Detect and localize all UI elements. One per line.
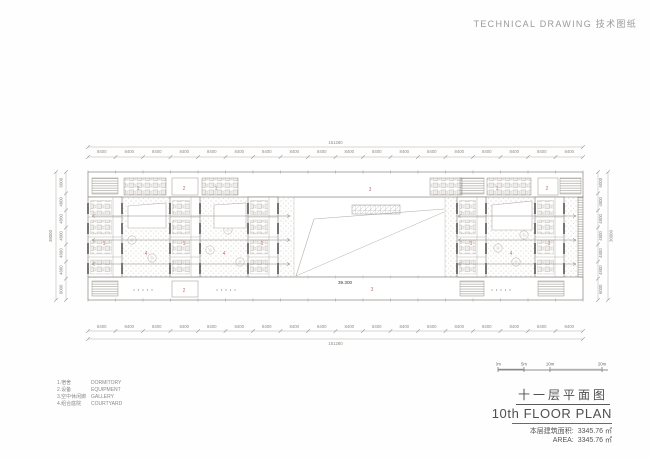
dot-row [138,289,139,290]
legend-item-zh: 1.宿舍 [57,380,91,387]
dimension-text: 8400 [454,324,464,329]
dimension-text: 8400 [234,324,244,329]
dimension-text: 6000 [59,284,64,294]
room-furniture [251,220,268,234]
dimension-text: 6000 [59,177,64,187]
legend-item: 1.宿舍DORMITORY [57,380,122,387]
dimension-text: 4800 [59,265,64,275]
dimension-text: 8400 [564,324,574,329]
legend: 1.宿舍DORMITORY2.设备EQUIPMENT3.空中休闲廊GALLERY… [57,380,122,408]
area-label: 本层建筑面积: [530,428,574,435]
room-number-label: 2 [546,186,549,192]
room-furniture [251,201,268,215]
title-block: 0m5m10m20m 十一层平面图 10th FLOOR PLAN 本层建筑面积… [492,360,612,445]
dimension-text: 8400 [317,324,327,329]
room-furniture [91,260,112,274]
scale-label: 20m [598,362,607,367]
dimension-text: 8400 [152,324,162,329]
dimension-text: 4800 [598,231,603,241]
plan-title-en: 10th FLOOR PLAN [492,406,612,421]
legend-item: 4.组合庭院COURTYARD [57,401,122,408]
room-number-label: 1 [215,186,218,192]
legend-item-en: EQUIPMENT [91,387,121,394]
dimension-text: 8400 [427,149,437,154]
dimension-text: 8400 [454,149,464,154]
dimension-text: 6000 [598,284,603,294]
room-furniture [173,201,190,215]
room-number-label: 4 [145,251,148,257]
scale-label: 0m [496,362,501,367]
room-furniture [173,260,190,274]
dimension-text: 8400 [207,324,217,329]
drawing-sheet: TECHNICAL DRAWING 技术图纸 84008400840084008… [0,0,650,459]
corridor-room [560,178,581,194]
dimension-text: 4800 [598,248,603,258]
room-number-label: 1 [496,186,499,192]
corridor-room [460,178,484,194]
corridor-room [92,178,118,194]
corridor-room [430,178,462,195]
area-value: 3345.76 ㎡ [578,428,612,435]
legend-item-zh: 3.空中休闲廊 [57,394,91,401]
area-label: AREA: [553,437,574,444]
dimension-text: 8400 [537,324,547,329]
dimension-text: 4800 [598,196,603,206]
dot-row [500,289,501,290]
dot-row [491,289,492,290]
dimension-text: 8400 [124,149,134,154]
room-furniture [538,220,554,234]
dimension-text: 8400 [509,324,519,329]
room-furniture [251,260,268,274]
plan-title-zh: 十一层平面图 [516,386,610,405]
area-row: 本层建筑面积:3345.76 ㎡ [492,427,612,436]
courtyard-texture [445,197,457,277]
dimension-text: 8400 [179,324,189,329]
dot-row [234,289,235,290]
room-number-label: 1 [103,241,106,247]
room-furniture [173,240,190,254]
room-furniture [460,260,476,274]
scale-bar: 0m5m10m20m [496,360,612,374]
room-number-label: 3 [371,287,374,293]
legend-item: 3.空中休闲廊GALLERY [57,394,122,401]
dot-row [221,289,222,290]
dimension-text: 8400 [97,324,107,329]
dot-row [216,289,217,290]
dot-row [147,289,148,290]
dimension-text: 4800 [598,214,603,224]
room-number-label: 4 [510,251,513,257]
dimension-text: 8400 [427,324,437,329]
room-number-label: 1 [470,241,473,247]
dimension-text: 8400 [482,149,492,154]
dimension-text: 8400 [234,149,244,154]
dimension-text: 8400 [344,149,354,154]
room-furniture [91,240,112,254]
dimension-text: 8400 [509,149,519,154]
dimension-text: 4800 [59,196,64,206]
courtyard-texture [564,197,578,277]
dimension-text: 8400 [537,149,547,154]
dimension-text: 8400 [372,149,382,154]
corridor-room [487,178,531,195]
room-number-label: 2 [183,186,186,192]
courtyard-texture [278,197,294,277]
room-number-label: 1 [261,241,264,247]
legend-item-en: GALLERY [91,394,114,401]
dimension-text: 8400 [262,149,272,154]
room-number-label: 3 [369,187,372,193]
pavilion [128,203,166,228]
room-furniture [460,220,476,234]
dimension-text: 8400 [207,149,217,154]
room-number-label: 1 [137,186,140,192]
legend-item: 2.设备EQUIPMENT [57,387,122,394]
scale-label: 10m [546,362,555,367]
skylight-grid [352,205,400,214]
dimension-text: 4800 [59,214,64,224]
legend-item-zh: 4.组合庭院 [57,401,91,408]
room-number-label: 1 [548,241,551,247]
room-number-label: 1 [183,241,186,247]
room-furniture [460,240,476,254]
bottom-corridor [88,277,583,300]
room-number-label: 2 [183,288,186,294]
dimension-text: 4800 [59,231,64,241]
room-furniture [538,240,554,254]
dimension-text: 151280 [328,140,343,145]
pavilion [214,203,246,228]
level-label: 39.300 [338,280,352,285]
room-furniture [91,220,112,234]
corridor-room [124,178,166,195]
dot-row [496,289,497,290]
legend-item-en: COURTYARD [91,401,122,408]
room-furniture [538,260,554,274]
dimension-text: 36000 [609,229,614,242]
dimension-text: 8400 [97,149,107,154]
area-value: 3345.76 ㎡ [578,437,612,444]
dimension-text: 8400 [482,324,492,329]
dimension-text: 8400 [564,149,574,154]
room-furniture [91,201,112,215]
title-divider [512,423,612,424]
legend-item-en: DORMITORY [91,380,121,387]
dot-row [509,289,510,290]
building-layer [88,170,583,301]
scale-label: 5m [521,362,527,367]
dot-row [225,289,226,290]
room-furniture [538,201,554,215]
corridor-room [92,281,118,296]
dimension-text: 8400 [317,149,327,154]
dimension-text: 8400 [399,149,409,154]
dimension-text: 8400 [289,324,299,329]
pavilion [492,201,532,230]
dot-row [133,289,134,290]
area-info: 本层建筑面积:3345.76 ㎡AREA:3345.76 ㎡ [492,427,612,445]
dimension-text: 8400 [179,149,189,154]
corridor-room [202,178,238,195]
room-number-label: 4 [223,251,226,257]
corridor-room [460,281,484,296]
dimension-text: 38000 [48,229,53,242]
dimension-text: 4800 [598,265,603,275]
corridor-room [538,281,564,296]
dimension-text: 8400 [262,324,272,329]
legend-item-zh: 2.设备 [57,387,91,394]
room-furniture [460,201,476,215]
dimension-text: 8400 [399,324,409,329]
dimension-text: 8400 [372,324,382,329]
area-row: AREA:3345.76 ㎡ [492,436,612,445]
dimension-text: 6000 [598,177,603,187]
dimension-text: 8400 [344,324,354,329]
dot-row [505,289,506,290]
dot-row [230,289,231,290]
dimension-text: 151280 [328,341,343,346]
dot-row [142,289,143,290]
end-wall [578,197,583,277]
dimension-text: 8400 [152,149,162,154]
dimension-text: 8400 [124,324,134,329]
dimension-text: 4800 [59,248,64,258]
dot-row [151,289,152,290]
room-furniture [251,240,268,254]
dimension-text: 8400 [289,149,299,154]
room-furniture [173,220,190,234]
